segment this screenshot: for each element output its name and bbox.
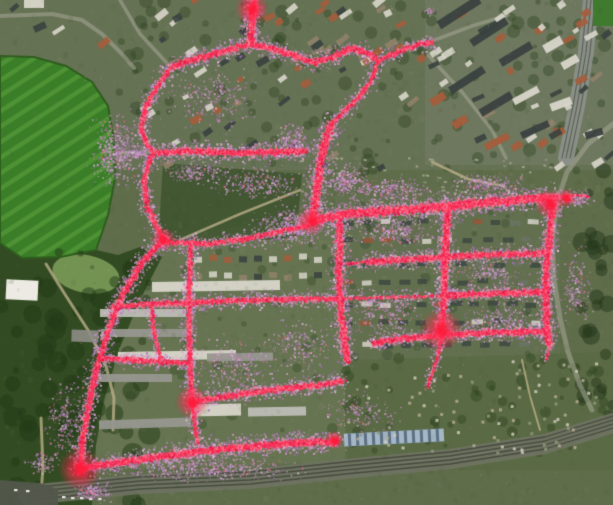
pointcloud-overlay-canvas [0,0,613,505]
aerial-map-screenshot [0,0,613,505]
